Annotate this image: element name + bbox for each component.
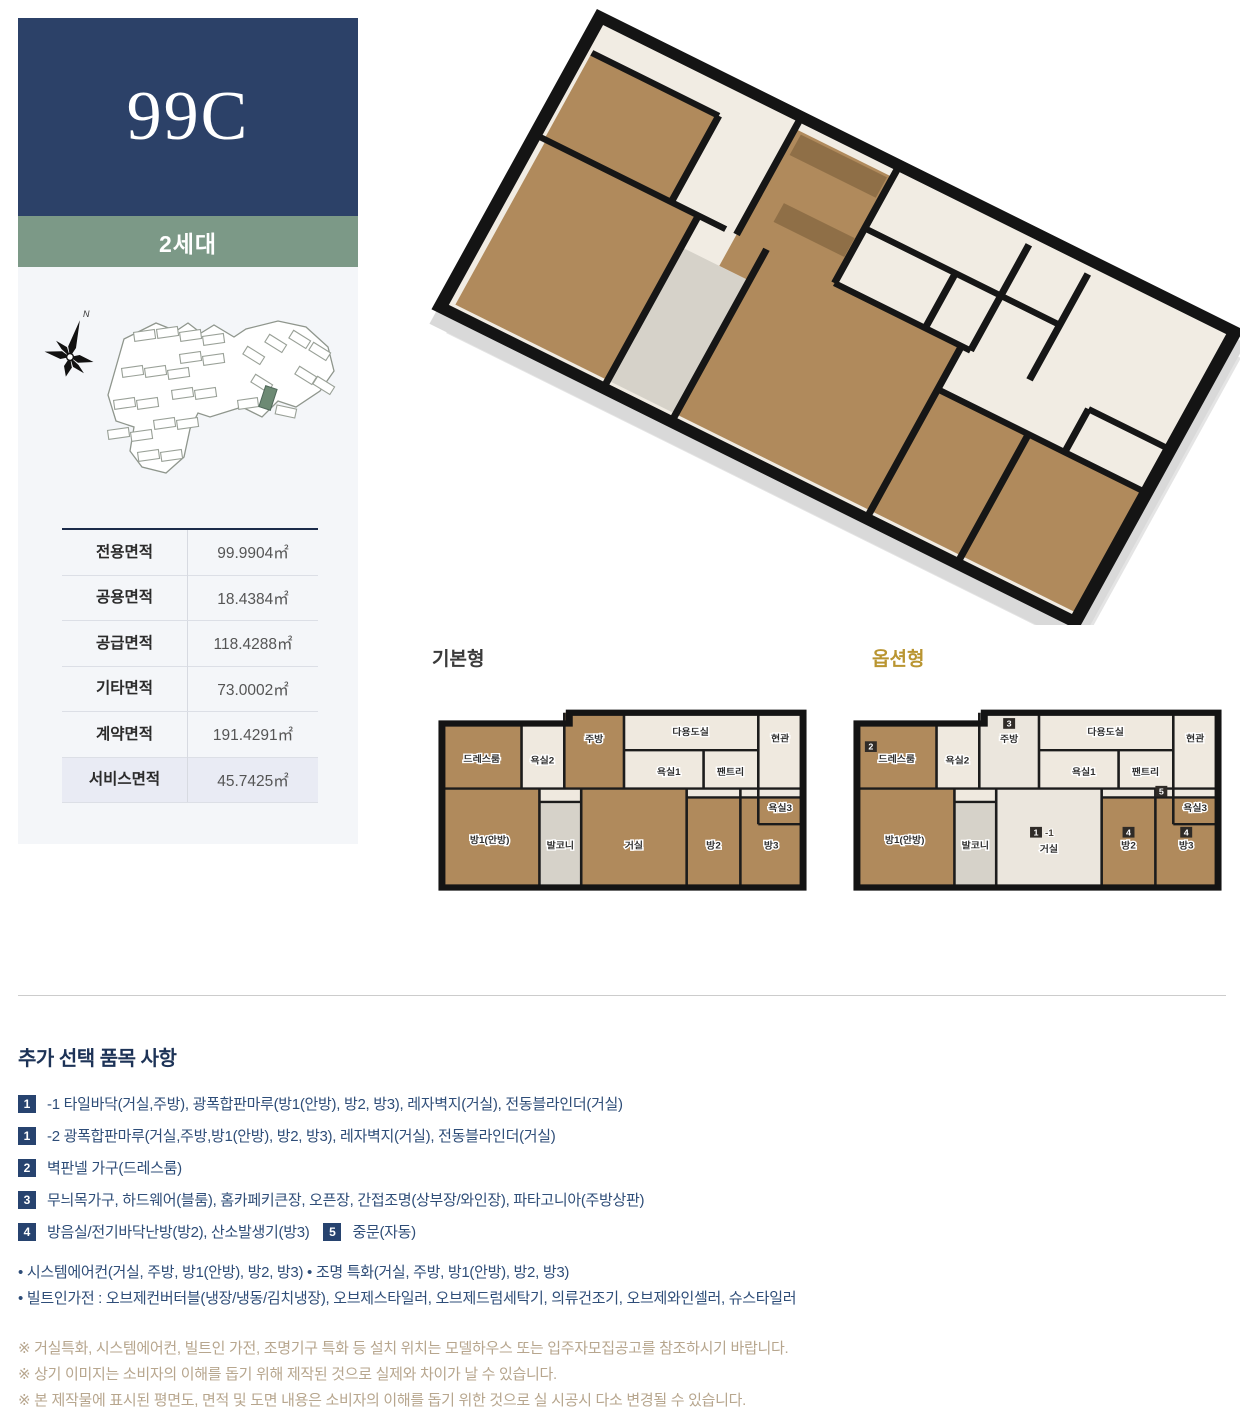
floor-plan-basic: 드레스룸 욕실2 주방 다용도실 욕실1 팬트리 현관 욕실3 방1(안방) 발… (430, 686, 814, 900)
room-label: 팬트리 (717, 767, 744, 778)
floor-plan-3d (420, 5, 1240, 625)
table-row-service-area: 서비스면적 45.7425㎡ (62, 758, 318, 804)
option-item: 1 -1 타일바닥(거실,주방), 광폭합판마루(방1(안방), 방2, 방3)… (18, 1095, 1230, 1114)
option-item: 2 벽판넬 가구(드레스룸) (18, 1159, 1230, 1178)
page: 99C 2세대 N (0, 0, 1244, 1426)
room-label: 욕실2 (531, 755, 555, 766)
table-row: 공급면적 118.4288㎡ (62, 621, 318, 667)
area-label: 계약면적 (62, 712, 188, 757)
svg-text:5: 5 (1159, 787, 1164, 796)
disclaimer-line: ※ 거실특화, 시스템에어컨, 빌트인 가전, 조명기구 특화 등 설치 위치는… (18, 1336, 1230, 1362)
compass-north-label: N (83, 309, 90, 319)
room-label: 다용도실 (672, 727, 709, 738)
floor-plan-option: 드레스룸 욕실2 주방 다용도실 욕실1 팬트리 현관 욕실3 방1(안방) 발… (845, 686, 1229, 900)
area-label: 공용면적 (62, 575, 188, 620)
option-number-badge: 2 (18, 1159, 36, 1177)
svg-text:3: 3 (1007, 719, 1012, 728)
option-item-text: 벽판넬 가구(드레스룸) (47, 1159, 182, 1178)
room-label: 주방 (1000, 734, 1019, 745)
room-label: 방3 (764, 840, 779, 851)
options-title: 추가 선택 품목 사항 (18, 1042, 1230, 1071)
feature-bullets: • 시스템에어컨(거실, 주방, 방1(안방), 방2, 방3) • 조명 특화… (18, 1260, 1230, 1312)
generation-bar: 2세대 (18, 216, 358, 267)
unit-code: 99C (127, 77, 250, 157)
room-label: 거실 (625, 840, 643, 851)
generation-label: 2세대 (159, 225, 217, 259)
option-badge-dressroom: 2 (865, 741, 877, 752)
table-row: 계약면적 191.4291㎡ (62, 712, 318, 758)
room-label: 발코니 (547, 840, 574, 851)
option-number-badge: 4 (18, 1223, 36, 1241)
svg-text:-1: -1 (1045, 828, 1054, 838)
room-label: 방1(안방) (470, 834, 510, 845)
room-label: 방3 (1179, 840, 1194, 851)
option-item-text: 중문(자동) (352, 1223, 415, 1242)
room-label: 드레스룸 (878, 753, 915, 764)
room-label: 주방 (585, 734, 604, 745)
option-badge-room2: 4 (1123, 827, 1135, 838)
room-label: 팬트리 (1132, 767, 1159, 778)
option-badge-door: 5 (1155, 786, 1167, 797)
area-value: 118.4288㎡ (188, 632, 318, 654)
area-label: 기타면적 (62, 666, 188, 711)
option-badge-living: 1 -1 (1030, 827, 1054, 839)
basic-plan-title: 기본형 (432, 644, 484, 671)
option-item-text: -2 광폭합판마루(거실,주방,방1(안방), 방2, 방3), 레자벽지(거실… (47, 1127, 555, 1146)
bullet-line: • 시스템에어컨(거실, 주방, 방1(안방), 방2, 방3) • 조명 특화… (18, 1260, 1230, 1286)
compass-icon (40, 314, 101, 381)
room-label: 현관 (771, 733, 790, 744)
table-row: 기타면적 73.0002㎡ (62, 667, 318, 713)
table-row: 전용면적 99.9904㎡ (62, 530, 318, 576)
area-label: 공급면적 (62, 621, 188, 666)
option-number-badge: 1 (18, 1127, 36, 1145)
table-row: 공용면적 18.4384㎡ (62, 576, 318, 622)
option-item-text: 방음실/전기바닥난방(방2), 산소발생기(방3) (47, 1223, 309, 1242)
option-number-badge: 5 (323, 1223, 341, 1241)
room-label: 욕실1 (1072, 767, 1096, 778)
option-number-badge: 3 (18, 1191, 36, 1209)
site-map: N (38, 295, 338, 495)
room-label: 욕실3 (1183, 802, 1207, 813)
option-item: 1 -2 광폭합판마루(거실,주방,방1(안방), 방2, 방3), 레자벽지(… (18, 1127, 1230, 1146)
option-item-text: -1 타일바닥(거실,주방), 광폭합판마루(방1(안방), 방2, 방3), … (47, 1095, 623, 1114)
svg-text:4: 4 (1184, 828, 1189, 837)
option-number-badge: 1 (18, 1095, 36, 1113)
svg-text:1: 1 (1034, 828, 1039, 837)
room-label: 방2 (706, 840, 721, 851)
room-label: 거실 (1040, 843, 1058, 854)
room-label: 방2 (1121, 840, 1136, 851)
additional-options-section: 추가 선택 품목 사항 1 -1 타일바닥(거실,주방), 광폭합판마루(방1(… (18, 1042, 1230, 1414)
room-label: 현관 (1186, 733, 1205, 744)
svg-text:2: 2 (868, 742, 873, 751)
option-badge-room3: 4 (1180, 827, 1192, 838)
room-label: 드레스룸 (463, 753, 500, 764)
option-badge-kitchen: 3 (1003, 718, 1015, 729)
option-item-text: 무늬목가구, 하드웨어(블룸), 홈카페키큰장, 오픈장, 간접조명(상부장/와… (47, 1191, 644, 1210)
area-value: 99.9904㎡ (188, 541, 318, 563)
area-value: 45.7425㎡ (188, 769, 318, 791)
disclaimer-line: ※ 상기 이미지는 소비자의 이해를 돕기 위해 제작된 것으로 실제와 차이가… (18, 1362, 1230, 1388)
disclaimer-line: ※ 본 제작물에 표시된 평면도, 면적 및 도면 내용은 소비자의 이해를 돕… (18, 1388, 1230, 1414)
area-label: 전용면적 (62, 530, 188, 575)
room-label: 다용도실 (1087, 727, 1124, 738)
area-value: 191.4291㎡ (188, 723, 318, 745)
room-label: 욕실1 (657, 767, 681, 778)
area-label: 서비스면적 (62, 757, 188, 802)
room-label: 욕실3 (768, 802, 792, 813)
disclaimers: ※ 거실특화, 시스템에어컨, 빌트인 가전, 조명기구 특화 등 설치 위치는… (18, 1336, 1230, 1414)
option-item: 4 방음실/전기바닥난방(방2), 산소발생기(방3) 5 중문(자동) (18, 1223, 1230, 1242)
section-divider (18, 995, 1226, 996)
option-item: 3 무늬목가구, 하드웨어(블룸), 홈카페키큰장, 오픈장, 간접조명(상부장… (18, 1191, 1230, 1210)
area-table: 전용면적 99.9904㎡ 공용면적 18.4384㎡ 공급면적 118.428… (62, 528, 318, 803)
bullet-line: • 빌트인가전 : 오브제컨버터블(냉장/냉동/김치냉장), 오브제스타일러, … (18, 1286, 1230, 1312)
room-label: 발코니 (962, 840, 989, 851)
unit-code-box: 99C (18, 18, 358, 216)
svg-text:4: 4 (1126, 828, 1131, 837)
left-info-panel: N (18, 267, 358, 844)
room-label: 방1(안방) (885, 834, 925, 845)
option-plan-title: 옵션형 (872, 644, 924, 671)
room-label: 욕실2 (946, 755, 970, 766)
area-value: 73.0002㎡ (188, 678, 318, 700)
area-value: 18.4384㎡ (188, 587, 318, 609)
